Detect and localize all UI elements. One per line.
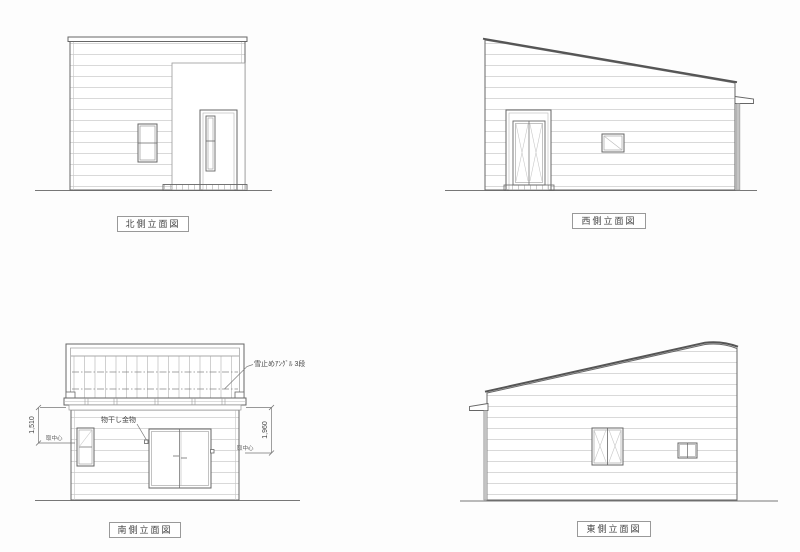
south-elevation-label: 南側立面図 xyxy=(109,522,181,538)
dimension-note-left: 取中心 xyxy=(46,436,63,442)
laundry-hook-left xyxy=(145,440,149,444)
west-elevation-drawing xyxy=(445,39,757,191)
east-elevation-drawing xyxy=(460,342,778,501)
west-gutter xyxy=(735,97,754,104)
west-entrance-door xyxy=(506,110,551,190)
east-gutter xyxy=(470,404,489,411)
south-window xyxy=(77,428,94,466)
laundry-hook-annotation: 物干し金物 xyxy=(101,417,136,425)
east-window-small xyxy=(678,443,697,458)
snow-guard-annotation: 雪止めｱﾝｸﾞﾙ 3段 xyxy=(254,361,305,369)
elevation-drawing-sheet: 北側立面図 西側立面図 南側立面図 東側立面図 雪止めｱﾝｸﾞﾙ 3段 物干し金… xyxy=(0,0,800,552)
dimension-value-right: 1,960 xyxy=(262,413,270,447)
east-elevation-label: 東側立面図 xyxy=(577,521,651,537)
south-gutter xyxy=(64,398,246,410)
east-wall xyxy=(487,344,737,500)
north-elevation-drawing xyxy=(35,37,272,191)
north-entrance-door xyxy=(200,110,237,190)
south-sliding-door xyxy=(149,429,211,488)
elevation-linework xyxy=(0,0,800,552)
dimension-note-right: 取中心 xyxy=(237,446,254,452)
west-elevation-label: 西側立面図 xyxy=(572,213,646,229)
laundry-hook-right xyxy=(211,450,215,454)
north-entrance-step xyxy=(163,185,247,191)
south-roof-surface xyxy=(66,344,244,404)
west-window xyxy=(602,134,624,152)
north-window xyxy=(138,124,157,162)
west-downspout xyxy=(737,104,740,191)
dimension-value-left: 1,510 xyxy=(29,408,37,442)
north-parapet-coping xyxy=(68,37,247,42)
north-elevation-label: 北側立面図 xyxy=(117,216,189,232)
east-window-large xyxy=(592,428,623,465)
east-downspout xyxy=(484,411,487,501)
west-entrance-step xyxy=(504,185,554,191)
